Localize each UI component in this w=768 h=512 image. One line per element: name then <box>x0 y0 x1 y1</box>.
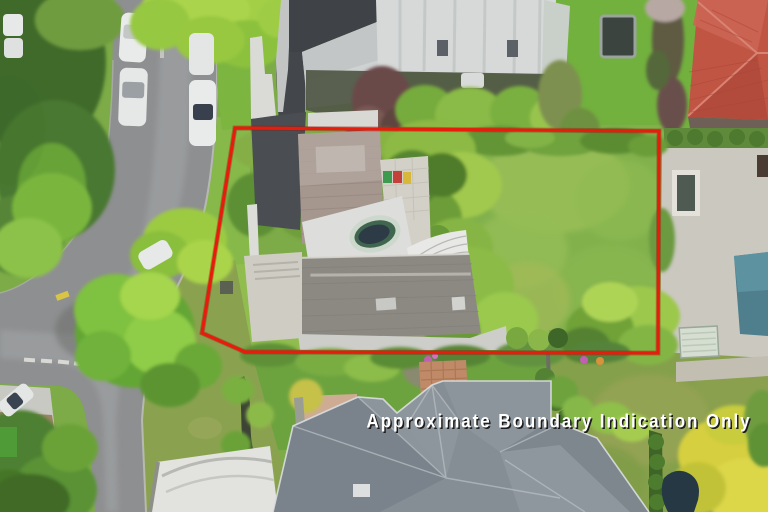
svg-text:Approximate Boundary Indicatio: Approximate Boundary Indication Only <box>367 411 752 433</box>
